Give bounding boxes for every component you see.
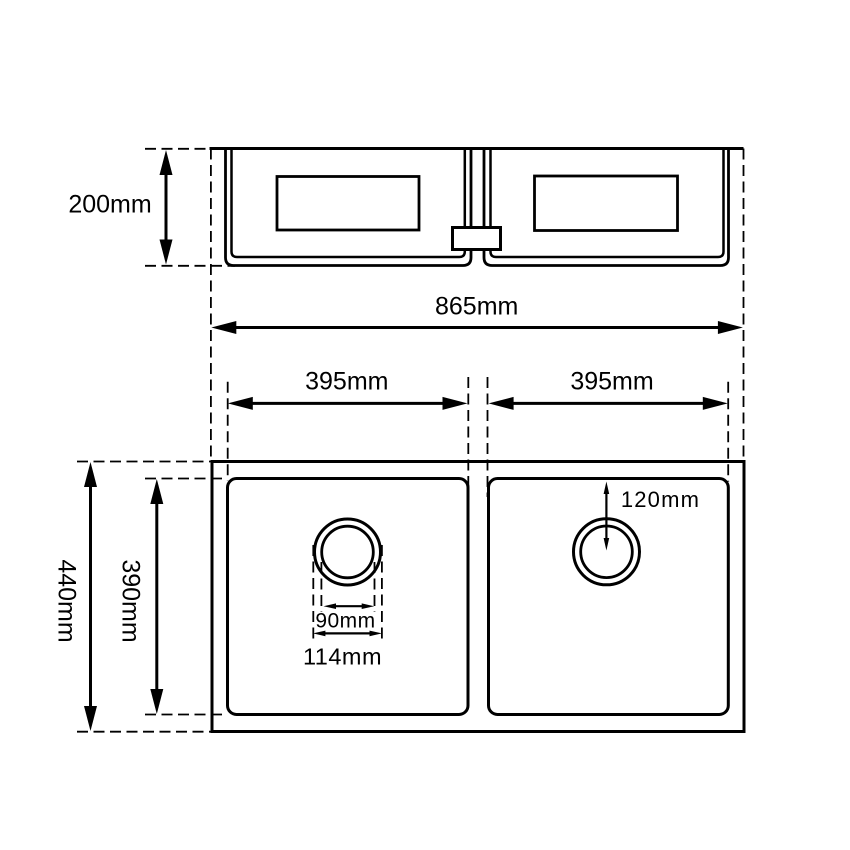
svg-text:200mm: 200mm [68, 191, 151, 219]
svg-text:90mm: 90mm [315, 610, 375, 633]
svg-text:395mm: 395mm [305, 368, 388, 396]
svg-text:395mm: 395mm [570, 368, 653, 396]
svg-text:114mm: 114mm [303, 644, 382, 670]
svg-text:390mm: 390mm [117, 559, 145, 642]
svg-text:120mm: 120mm [621, 487, 700, 512]
svg-text:440mm: 440mm [53, 559, 81, 642]
svg-text:865mm: 865mm [435, 293, 518, 321]
